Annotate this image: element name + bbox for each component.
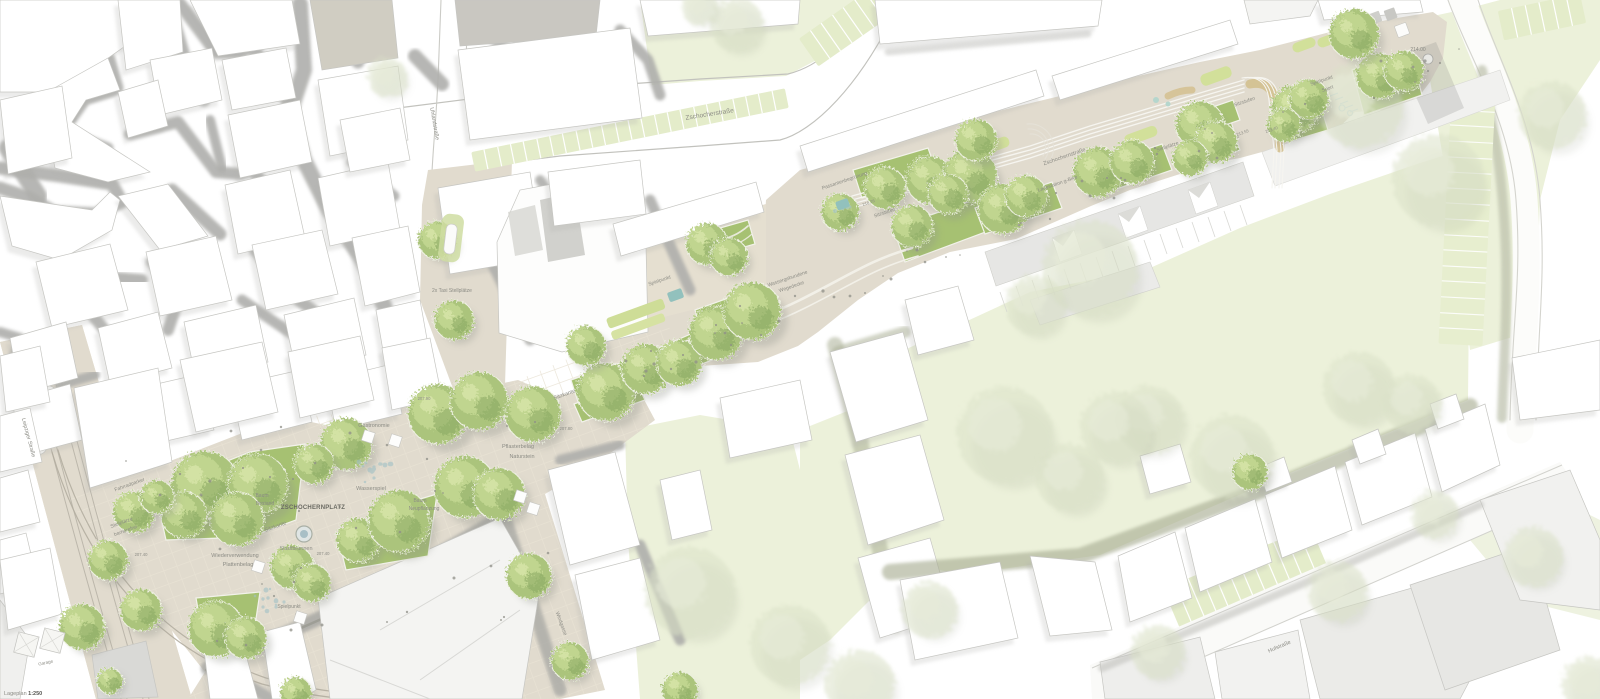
svg-text:207.40: 207.40: [317, 551, 330, 556]
svg-text:Naturstein: Naturstein: [509, 454, 534, 460]
svg-text:Wasserspiel: Wasserspiel: [356, 486, 386, 492]
svg-text:207.80: 207.80: [560, 426, 573, 431]
svg-text:Neupflanzung: Neupflanzung: [409, 506, 440, 512]
svg-text:Bestand: Bestand: [256, 501, 275, 507]
svg-text:Plattenbelag: Plattenbelag: [223, 562, 254, 568]
svg-text:Pflasterbelag: Pflasterbelag: [502, 444, 534, 450]
svg-text:214.00: 214.00: [1410, 47, 1426, 53]
svg-text:Baum: Baum: [413, 498, 426, 504]
svg-text:Gastronomie: Gastronomie: [358, 423, 390, 429]
svg-text:ZSCHOCHERNPLATZ: ZSCHOCHERNPLATZ: [281, 505, 345, 511]
svg-text:Spielpunkt: Spielpunkt: [277, 604, 301, 610]
svg-text:207.40: 207.40: [135, 552, 148, 557]
svg-text:Wiederverwendung: Wiederverwendung: [211, 553, 258, 559]
svg-text:Stadtbrunnen: Stadtbrunnen: [279, 546, 312, 552]
svg-text:2x Taxi Stellplätze: 2x Taxi Stellplätze: [432, 288, 472, 294]
svg-text:207.90: 207.90: [418, 396, 431, 401]
svg-text:Baum: Baum: [255, 493, 268, 499]
svg-text:Lageplan 1:250: Lageplan 1:250: [4, 691, 42, 697]
